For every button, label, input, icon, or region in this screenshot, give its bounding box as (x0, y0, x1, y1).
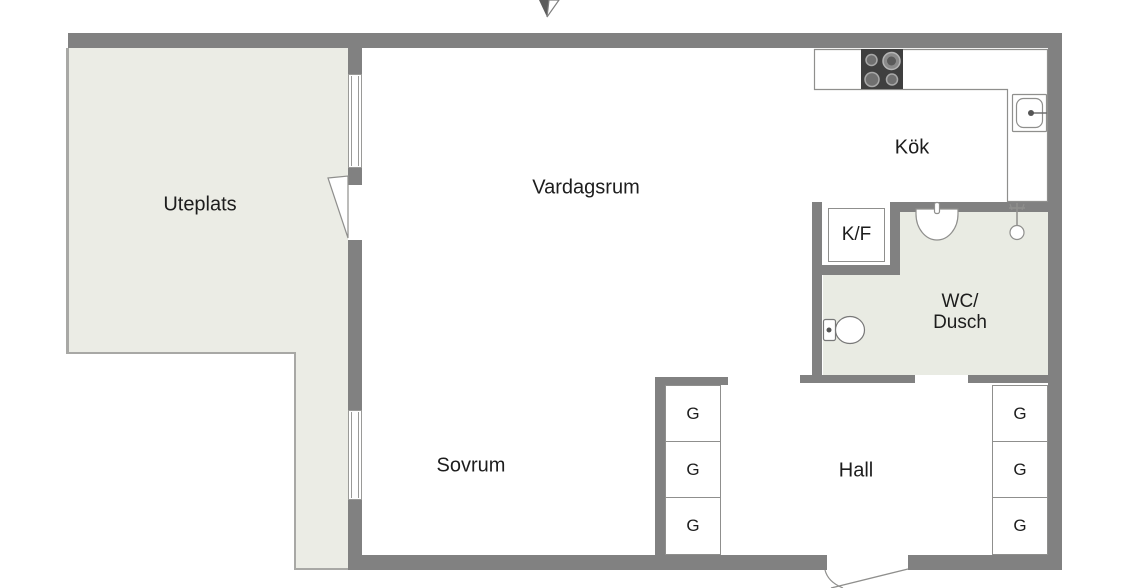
window-pane (351, 76, 359, 166)
closet-box: G (665, 385, 721, 442)
closet-box: G (992, 497, 1048, 555)
wall-bottom-right-segment (908, 555, 1062, 570)
wall-mid-segment-2 (348, 168, 362, 185)
north-arrow-icon (539, 0, 559, 17)
stove-icon (861, 49, 903, 89)
kitchen-sink-icon (1013, 95, 1048, 132)
closet-label: G (686, 404, 699, 424)
closet-label: G (1013, 460, 1026, 480)
closet-box: G (992, 441, 1048, 498)
wall-hall-closet (655, 377, 665, 555)
window-pane (351, 412, 359, 498)
fridge-freezer-label: K/F (842, 224, 872, 246)
closet-box: G (992, 385, 1048, 442)
room-label-wc: WC/ (933, 291, 987, 312)
closet-label: G (1013, 404, 1026, 424)
wall-mid-segment-3 (348, 240, 362, 410)
window-icon-sovrum (348, 410, 362, 500)
room-label-kok: Kök (895, 138, 929, 159)
wall-bath-left (812, 202, 822, 383)
room-label-sovrum: Sovrum (437, 456, 506, 477)
wall-bottom-left-segment (348, 555, 827, 570)
wall-mid-segment-1 (348, 48, 362, 74)
patio-strip-bottom-edge-line (296, 568, 348, 570)
patio-left-edge-line (66, 48, 69, 354)
wall-right (1048, 48, 1062, 570)
wall-bath-bottom-left (800, 375, 915, 383)
closet-label: G (686, 460, 699, 480)
closet-label: G (1013, 516, 1026, 536)
wall-bath-top (900, 202, 1048, 212)
entry-door-swing-icon (825, 569, 908, 588)
window-icon-patio (348, 74, 362, 168)
closet-box: G (665, 441, 721, 498)
fridge-freezer-box: K/F (828, 208, 885, 262)
wall-hall-closet-cap (655, 377, 728, 385)
room-label-wc-dusch: WC/ Dusch (933, 291, 987, 333)
wall-top (68, 33, 1062, 48)
kitchen-counter (815, 50, 1048, 202)
wall-bath-bottom-right (968, 375, 1048, 383)
room-label-dusch: Dusch (933, 312, 987, 333)
room-label-uteplats: Uteplats (163, 195, 236, 216)
patio-bottom-edge-line (66, 352, 296, 354)
closet-box: G (665, 497, 721, 555)
room-label-vardagsrum: Vardagsrum (532, 178, 639, 199)
wall-mid-segment-4 (348, 500, 362, 555)
floorplan-canvas: K/F G G G G G G (0, 0, 1130, 588)
wall-kf-bottom (812, 265, 900, 275)
uteplats-strip-floor-area (296, 352, 348, 570)
patio-strip-left-edge-line (294, 352, 296, 570)
closet-label: G (686, 516, 699, 536)
room-label-hall: Hall (839, 461, 873, 482)
